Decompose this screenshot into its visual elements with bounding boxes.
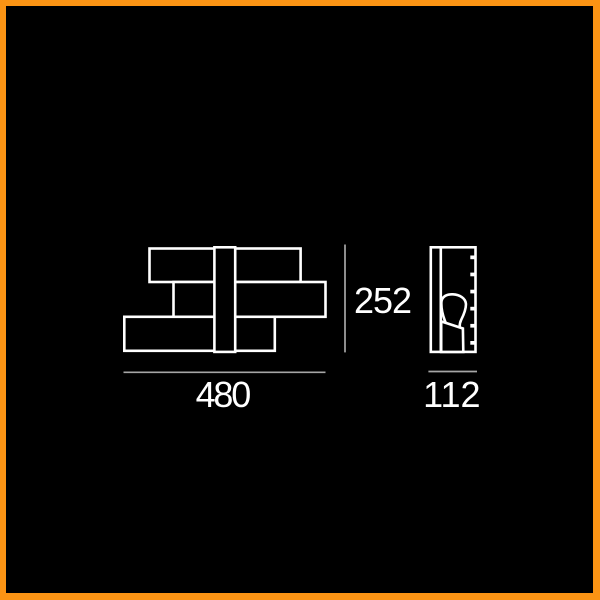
svg-text:112: 112 bbox=[423, 374, 480, 415]
svg-text:252: 252 bbox=[354, 280, 411, 321]
svg-text:480: 480 bbox=[196, 374, 251, 415]
